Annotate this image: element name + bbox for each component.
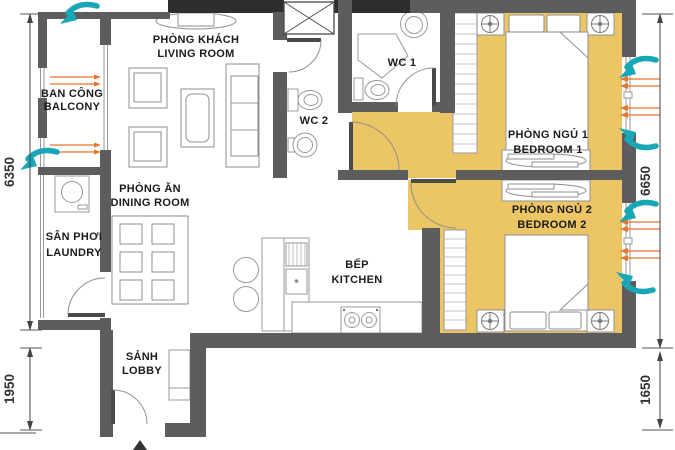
room-label-dining-en: DINING ROOM — [110, 197, 189, 209]
fan-icon — [592, 16, 609, 33]
wall-segment — [273, 72, 287, 178]
room-label-wc2: WC 2 — [300, 115, 329, 127]
closet-bedroom2 — [444, 230, 466, 330]
room-label-bedroom1-en: BEDROOM 1 — [513, 144, 582, 156]
room-label-balcony-en: BALCONY — [44, 101, 101, 113]
dining-chair — [152, 252, 174, 272]
wall-segment — [456, 170, 622, 180]
washing-machine-drum — [62, 182, 83, 203]
burner-center — [366, 317, 372, 323]
room-label-bedroom2-vi: PHÒNG NGỦ 2 — [512, 203, 592, 216]
pillow — [510, 312, 546, 329]
dim-right-upper: 6650 — [638, 166, 653, 196]
wall-segment — [338, 0, 352, 113]
room-label-wc1: WC 1 — [388, 57, 417, 69]
bedroom1-hall-zone — [352, 112, 455, 178]
shaft-x-box — [284, 2, 334, 34]
sofa-cushions — [231, 76, 258, 156]
sink-drain — [295, 279, 299, 283]
dining-chair — [120, 252, 142, 272]
wardrobe-door — [508, 184, 554, 189]
pillow — [547, 15, 580, 32]
wardrobe-door — [532, 192, 578, 197]
room-label-living-vi: PHÒNG KHÁCH — [153, 33, 239, 46]
wardrobe-door — [532, 162, 578, 167]
dim-right-lower: 1650 — [638, 375, 653, 405]
dim-left-upper: 6350 — [2, 157, 17, 187]
laundry-fixtures — [55, 176, 89, 212]
shoe-cabinet — [169, 350, 190, 400]
wall-segment — [190, 348, 206, 423]
door-leaf — [432, 68, 436, 106]
window-mullion — [624, 92, 632, 98]
stool-icon — [234, 258, 259, 283]
sink-basin — [406, 17, 423, 34]
dining-furniture — [112, 216, 188, 304]
tv-icon — [178, 13, 214, 26]
dining-chair — [152, 280, 174, 300]
armchair-seat — [134, 132, 161, 161]
stove-knob — [343, 309, 345, 311]
toilet-bowl — [304, 95, 318, 106]
sink-basin — [298, 138, 313, 153]
wall-segment — [100, 12, 111, 45]
coffee-table-top — [186, 94, 209, 142]
wall-segment — [352, 102, 398, 112]
floor-plan: PHÒNG KHÁCH LIVING ROOM BAN CÔNG BALCONY… — [0, 0, 675, 450]
door-leaf — [349, 122, 353, 170]
pillow — [509, 15, 544, 32]
entry-door-leaf — [111, 390, 115, 424]
dim-left-lower: 1950 — [2, 374, 17, 404]
wall-segment — [422, 228, 440, 333]
wall-segment — [168, 0, 284, 13]
stove-knob — [376, 309, 378, 311]
room-label-laundry-en: LAUNDRY — [46, 247, 102, 259]
wall-segment — [100, 318, 111, 330]
dining-chair — [120, 280, 142, 300]
window-mullion — [624, 238, 632, 244]
toilet-tank — [354, 78, 363, 100]
room-label-laundry-vi: SÂN PHƠI — [46, 230, 102, 243]
wall-segment — [338, 170, 408, 180]
wall-segment — [38, 12, 47, 68]
door-leaf — [287, 38, 321, 42]
burner-center — [349, 317, 355, 323]
wall-segment — [38, 167, 104, 175]
fan-icon — [482, 313, 499, 330]
washing-machine-panel — [78, 205, 87, 209]
wall-segment — [38, 320, 104, 330]
wall-segment — [165, 423, 206, 437]
room-label-lobby-vi: SẢNH — [126, 350, 158, 363]
armchair-seat — [134, 73, 161, 102]
room-label-kitchen-vi: BẾP — [345, 258, 369, 271]
wall-segment — [440, 0, 455, 113]
dining-chair — [152, 224, 174, 244]
wall-segment — [190, 333, 636, 348]
dining-chair — [120, 224, 142, 244]
door-leaf — [68, 313, 105, 317]
toilet-bowl — [371, 85, 385, 96]
door-leaf — [411, 179, 456, 183]
room-label-balcony-vi: BAN CÔNG — [41, 87, 103, 100]
room-label-bedroom2-en: BEDROOM 2 — [517, 219, 586, 231]
room-label-kitchen-en: KITCHEN — [332, 274, 383, 286]
stool-icon — [234, 287, 259, 312]
room-label-dining-vi: PHÒNG ĂN — [119, 182, 181, 195]
room-label-bedroom1-vi: PHÒNG NGỦ 1 — [508, 128, 588, 141]
fan-icon — [592, 313, 609, 330]
fan-icon — [482, 16, 499, 33]
pillow — [549, 312, 581, 329]
room-label-lobby-en: LOBBY — [122, 365, 162, 377]
toilet-tank — [288, 89, 298, 111]
wall-segment — [622, 0, 636, 57]
room-label-living-en: LIVING ROOM — [157, 48, 234, 60]
